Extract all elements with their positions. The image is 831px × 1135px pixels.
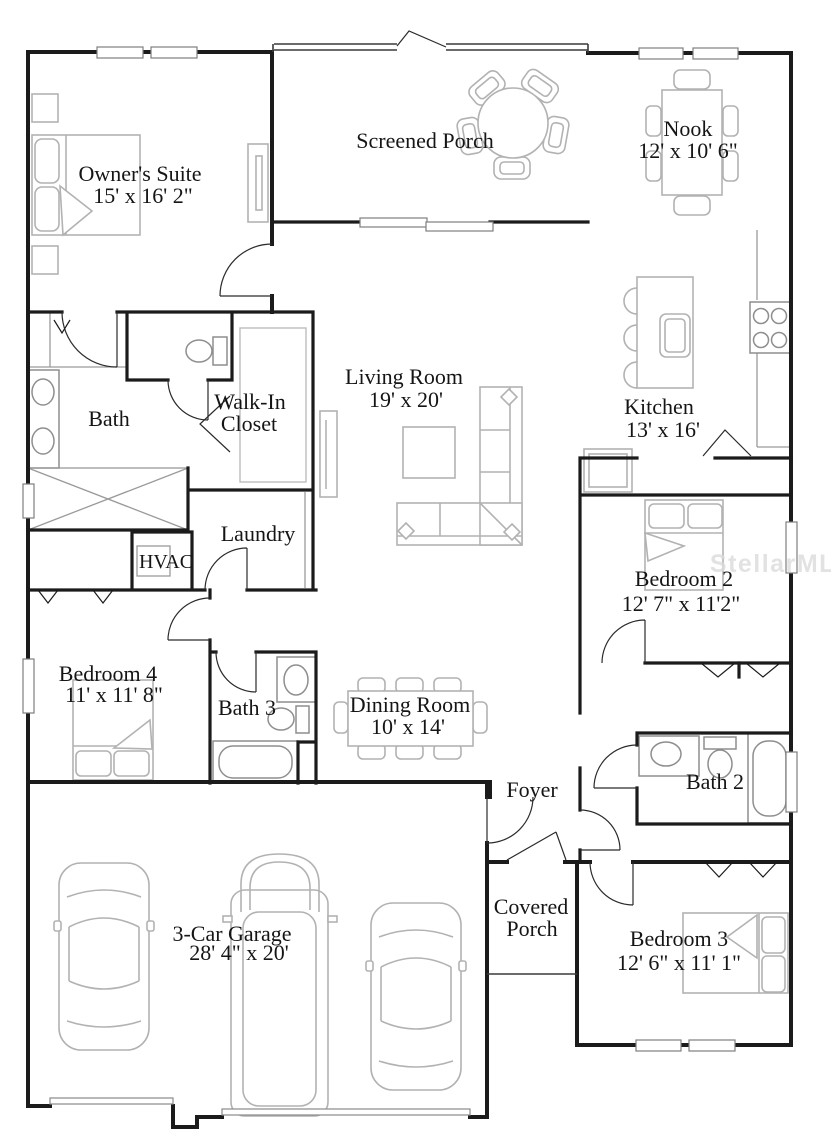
floor-plan: Owner's Suite 15' x 16' 2" Screened Porc… [0, 0, 831, 1135]
toilet-icon [186, 337, 227, 365]
car-icon [366, 903, 466, 1090]
bath2-label: Bath 2 [686, 769, 744, 794]
shower-icon [28, 468, 188, 530]
bedroom3-dims: 12' 6" x 11' 1" [617, 950, 741, 975]
screened-porch-label: Screened Porch [356, 128, 493, 153]
van-icon [223, 854, 337, 1116]
stove-icon [750, 302, 790, 353]
bedroom3-label: Bedroom 3 [630, 926, 728, 951]
bedroom2-dims: 12' 7" x 11'2" [622, 591, 741, 616]
laundry-label: Laundry [221, 521, 296, 546]
car-icon [54, 863, 154, 1050]
covered-porch-label2: Porch [506, 916, 557, 941]
living-room-dims: 19' x 20' [369, 387, 443, 412]
tv-console-icon [320, 411, 337, 497]
kitchen-dims: 13' x 16' [626, 417, 700, 442]
bath-label: Bath [88, 406, 130, 431]
hvac-label: HVAC [139, 551, 193, 573]
nook-dims: 12' x 10' 6" [638, 138, 737, 163]
bath3-vanity-icon [277, 657, 316, 702]
bath3-tub-icon [213, 741, 298, 783]
kitchen-island-icon [624, 277, 693, 388]
stellar-mls-watermark: StellarMLS [710, 550, 831, 578]
double-vanity-icon [28, 370, 59, 468]
kitchen-label: Kitchen [624, 394, 694, 419]
dresser-icon [248, 144, 268, 222]
floor-plan-svg: Owner's Suite 15' x 16' 2" Screened Porc… [0, 0, 831, 1135]
dining-room-dims: 10' x 14' [371, 714, 445, 739]
owners-suite-dims: 15' x 16' 2" [93, 183, 192, 208]
bath2-tub-icon [748, 733, 791, 823]
foyer-label: Foyer [506, 777, 558, 802]
bedroom4-dims: 11' x 11' 8" [65, 682, 163, 707]
fridge-icon [584, 449, 632, 492]
walk-in-closet-label2: Closet [221, 411, 277, 436]
living-room-label: Living Room [345, 364, 463, 389]
garage-dims: 28' 4" x 20' [189, 940, 288, 965]
coffee-table-icon [403, 427, 455, 478]
bath3-label: Bath 3 [218, 695, 276, 720]
